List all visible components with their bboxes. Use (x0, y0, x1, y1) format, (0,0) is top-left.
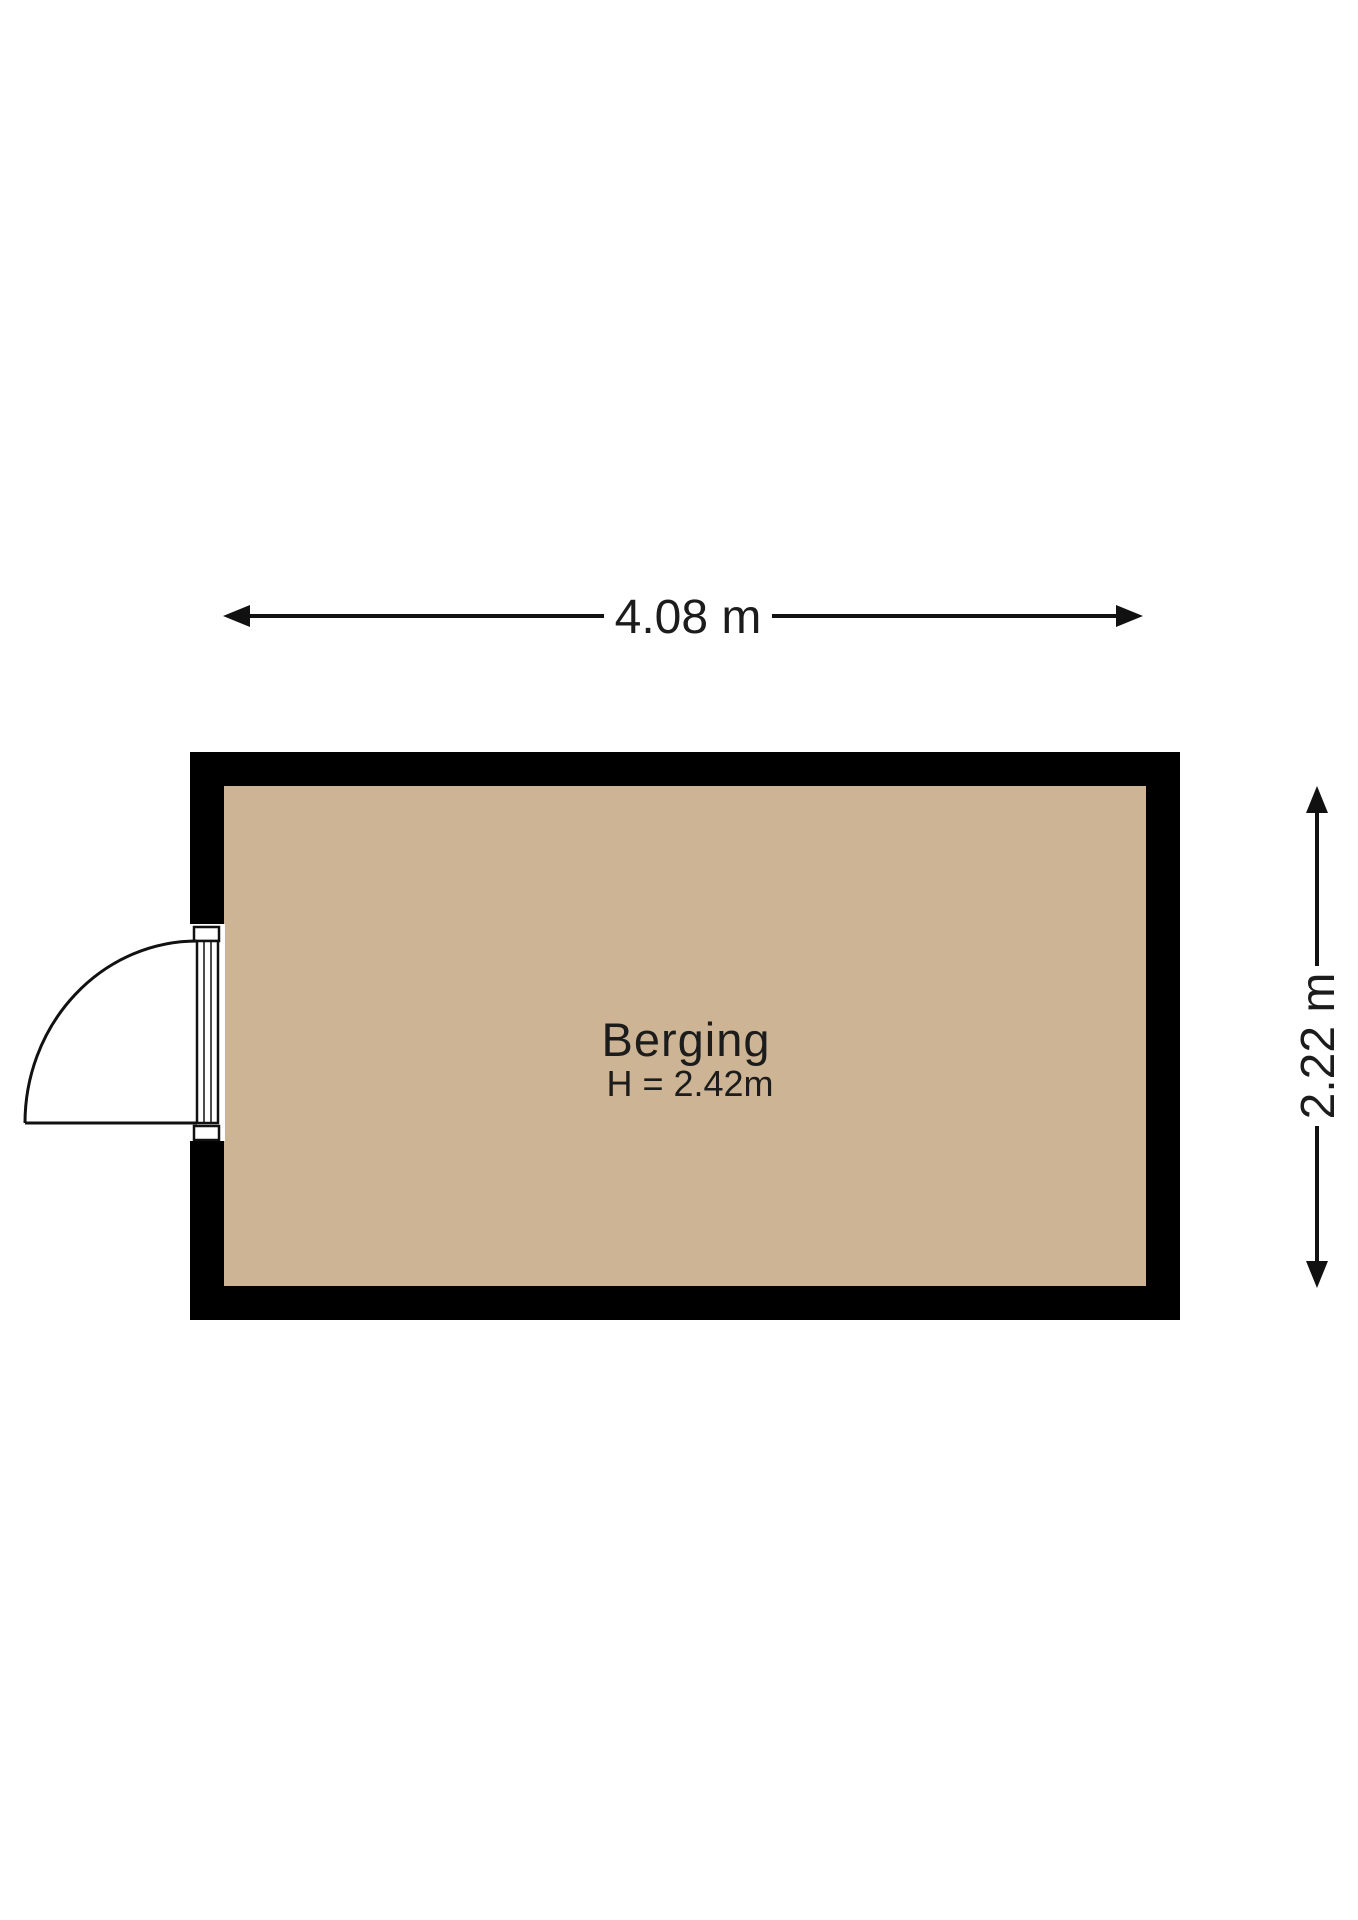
room-berging: Berging H = 2.42m (25, 752, 1180, 1320)
arrow-right-icon (1116, 605, 1143, 627)
arrow-up-icon (1306, 786, 1328, 813)
room-height-label: H = 2.42m (606, 1063, 773, 1104)
door-swing-arc (25, 941, 197, 1123)
door-leaf-closed (197, 941, 218, 1123)
door-frame-post-bottom (194, 1126, 219, 1140)
room-name-label: Berging (602, 1013, 771, 1066)
width-dimension-label: 4.08 m (615, 591, 762, 644)
floorplan-canvas: 4.08 m Berging H = 2.42m (0, 0, 1358, 1920)
door-frame-post-top (194, 927, 219, 941)
depth-dimension: 2.22 m (1292, 786, 1345, 1288)
width-dimension: 4.08 m (223, 591, 1143, 644)
arrow-left-icon (223, 605, 250, 627)
depth-dimension-label: 2.22 m (1292, 973, 1345, 1120)
arrow-down-icon (1306, 1261, 1328, 1288)
floorplan-svg: 4.08 m Berging H = 2.42m (0, 0, 1358, 1920)
